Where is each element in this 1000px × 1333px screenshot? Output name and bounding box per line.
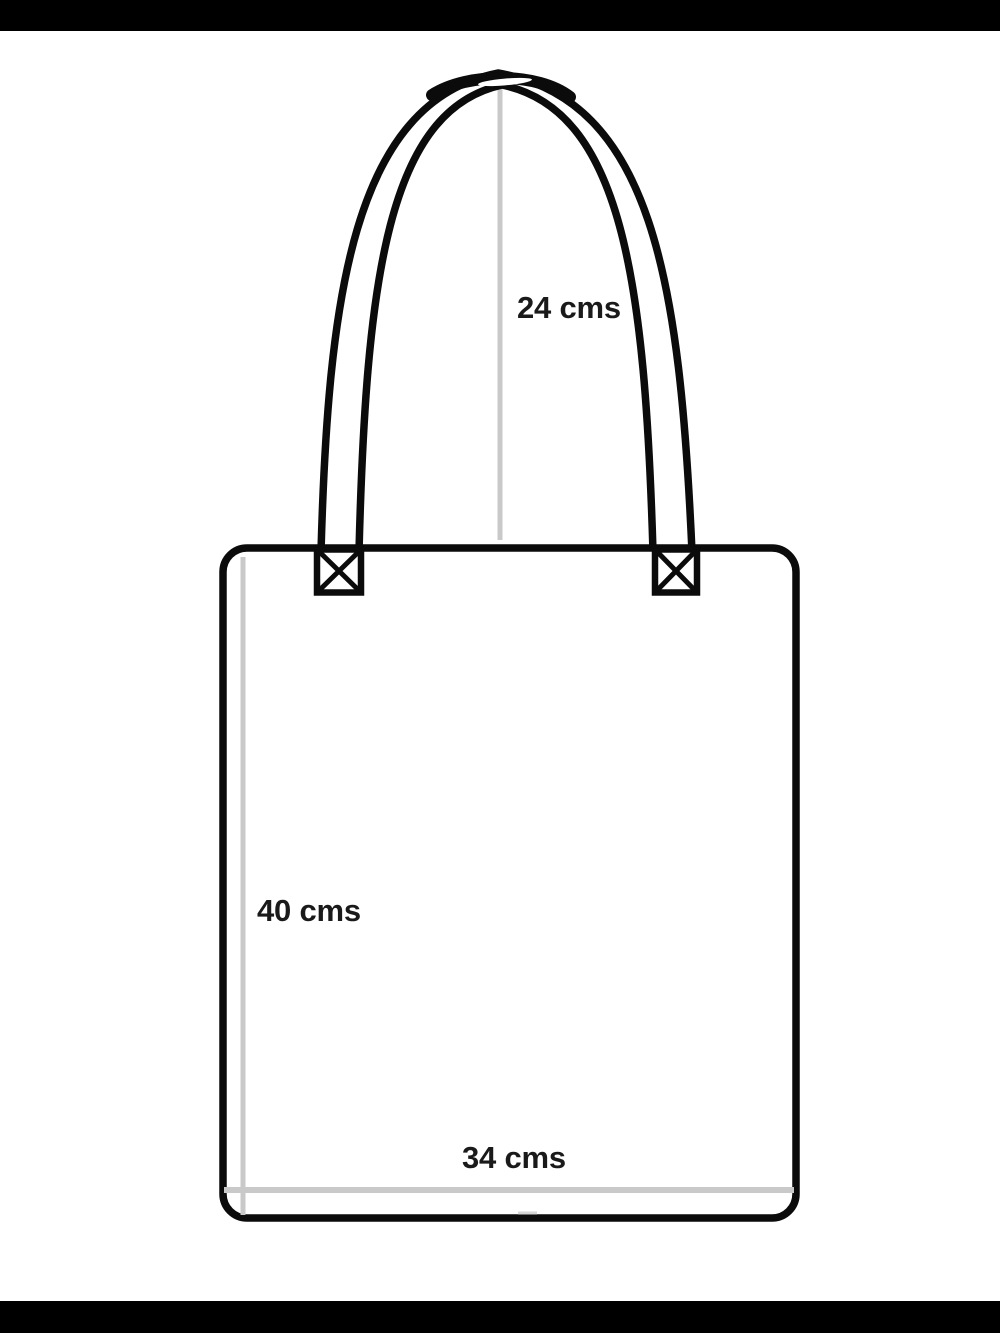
stitch-box-right xyxy=(655,550,697,593)
handle-height-label: 24 cms xyxy=(517,292,621,323)
tote-bag-drawing xyxy=(0,0,1000,1333)
bag-height-label: 40 cms xyxy=(257,895,361,926)
letterbox-top-bar xyxy=(0,0,1000,31)
bag-body-outline xyxy=(223,548,796,1218)
letterbox-bottom-bar xyxy=(0,1301,1000,1333)
stitch-box-left xyxy=(317,550,361,593)
bag-width-label: 34 cms xyxy=(462,1142,566,1173)
tote-bag-dimension-diagram: 24 cms 40 cms 34 cms xyxy=(0,0,1000,1333)
